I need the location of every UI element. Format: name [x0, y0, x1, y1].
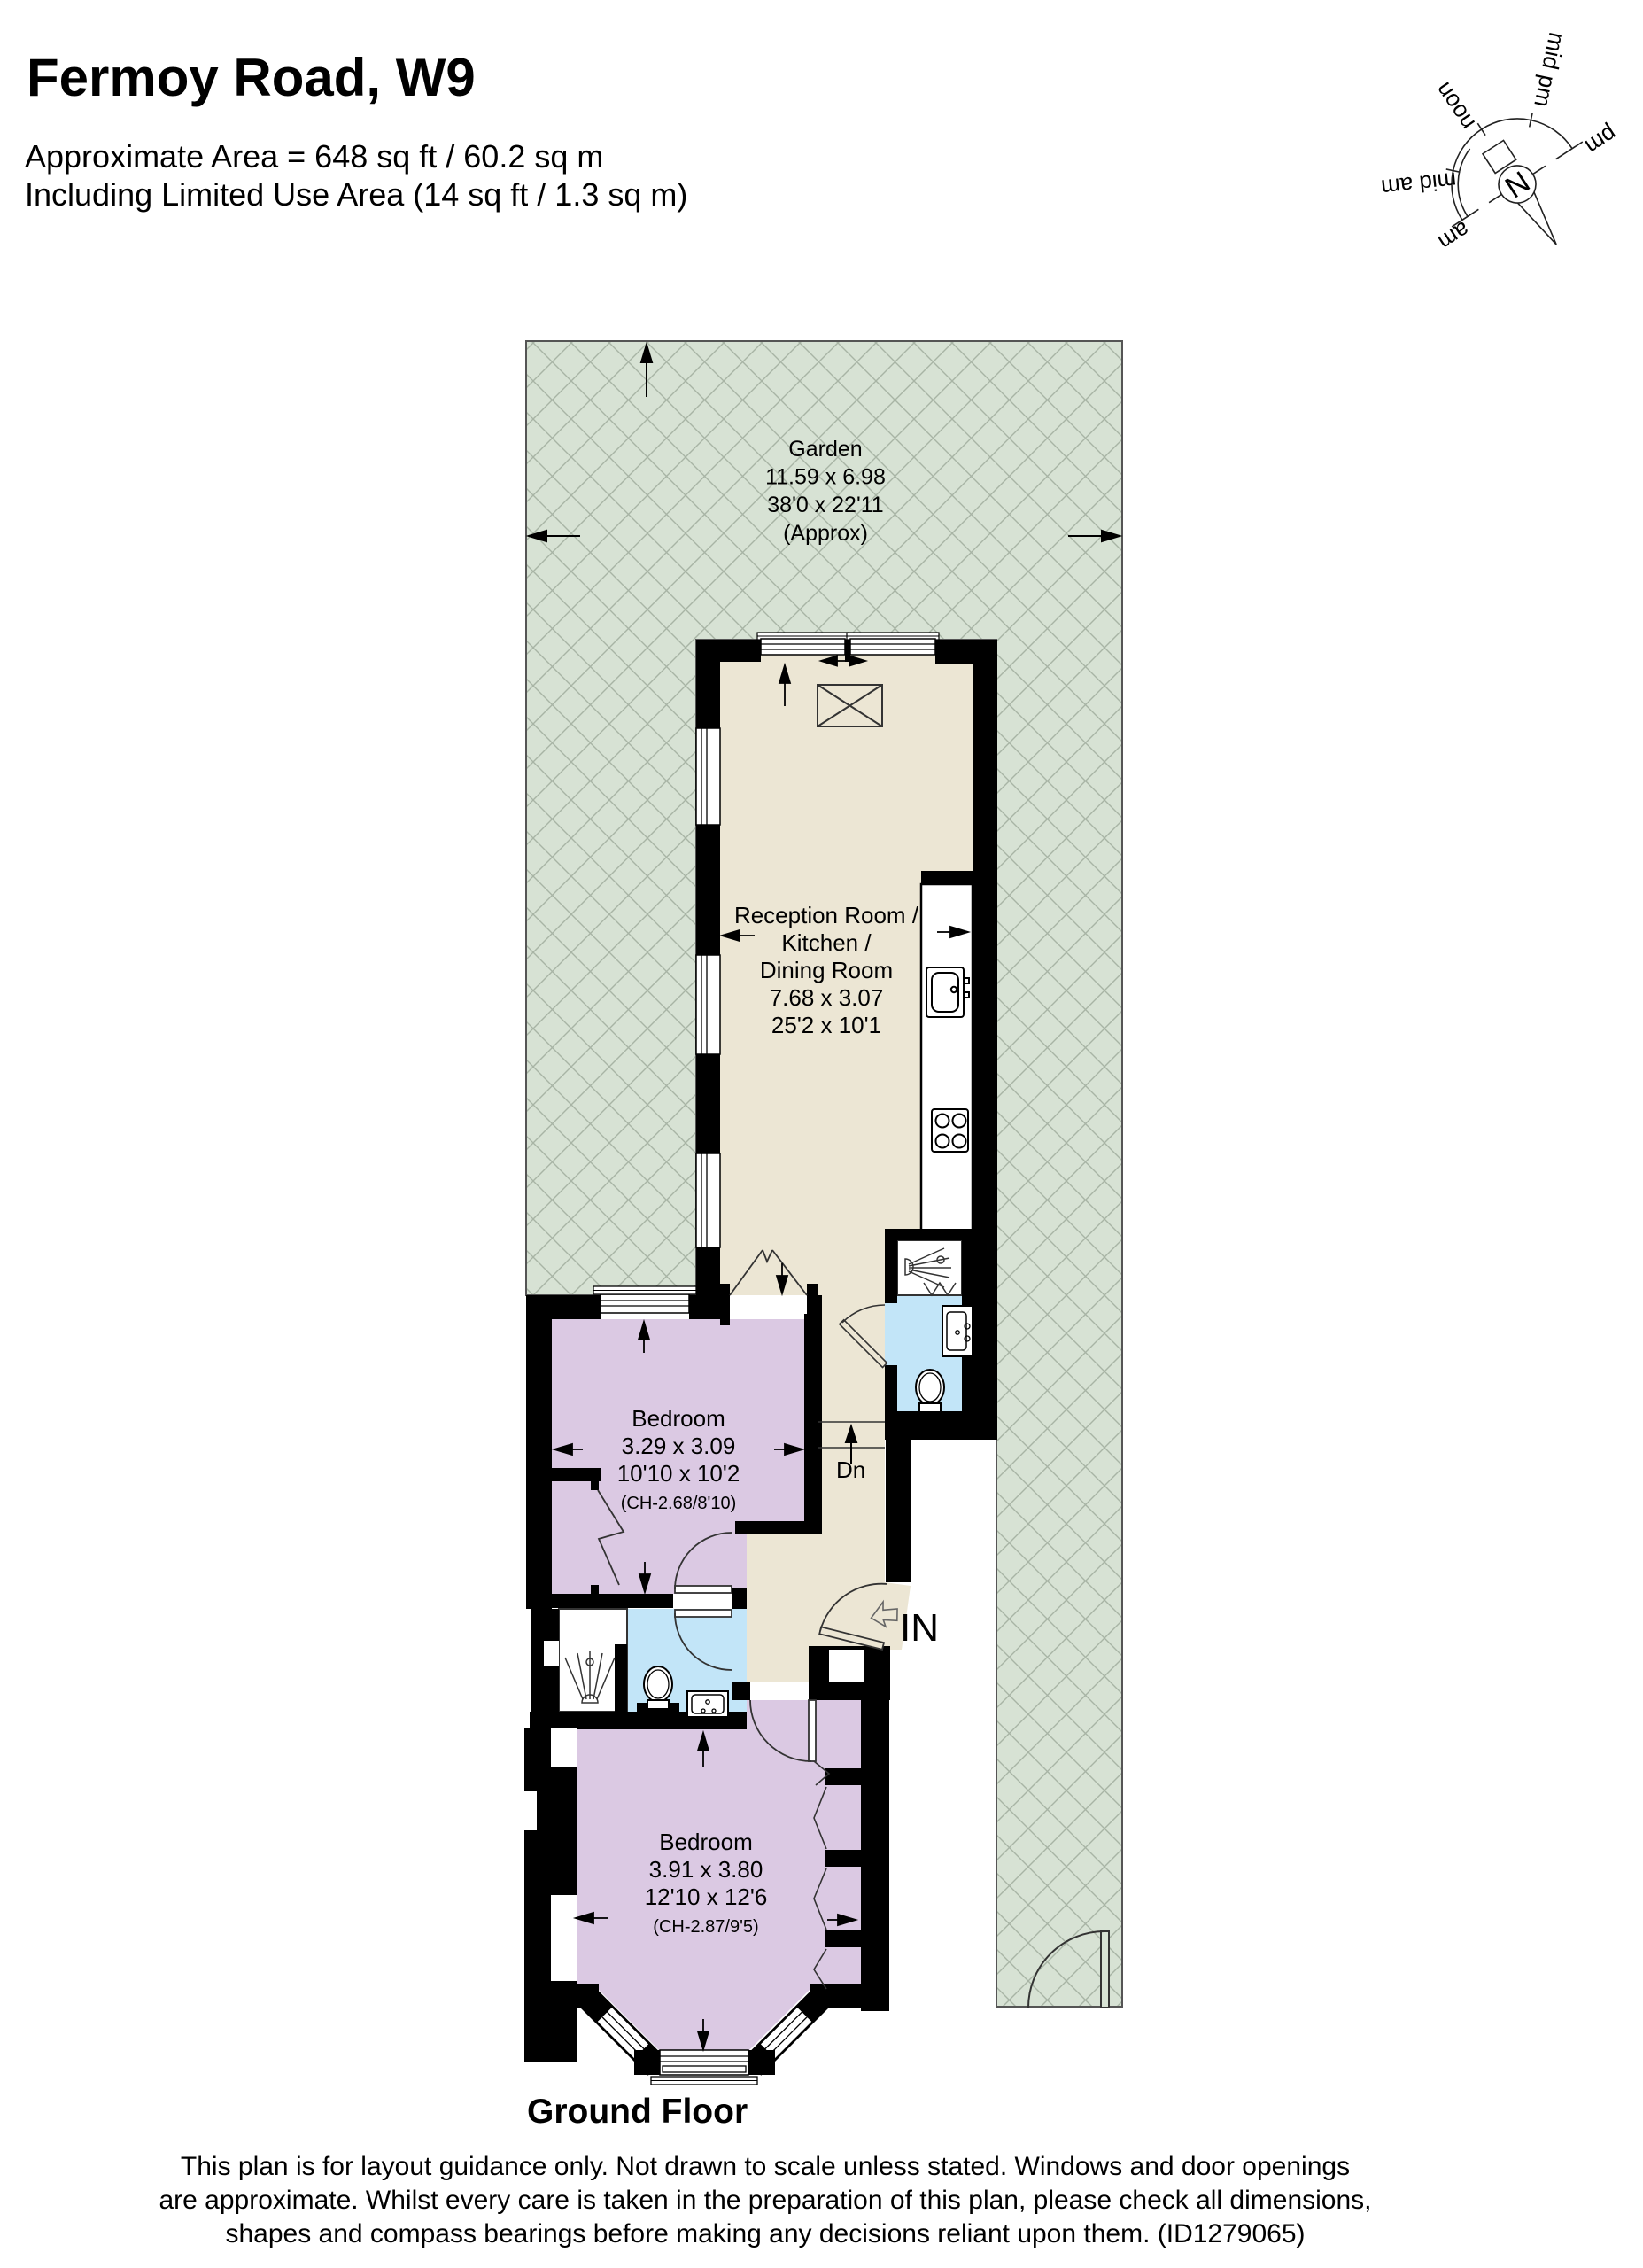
svg-text:10'10 x 10'2: 10'10 x 10'2 — [617, 1460, 740, 1487]
svg-text:11.59 x 6.98: 11.59 x 6.98 — [765, 465, 886, 490]
svg-text:3.91 x 3.80: 3.91 x 3.80 — [649, 1856, 763, 1883]
svg-text:(Approx): (Approx) — [783, 521, 868, 546]
svg-text:7.68 x 3.07: 7.68 x 3.07 — [770, 984, 884, 1011]
svg-text:Garden: Garden — [788, 437, 862, 462]
svg-text:Ground Floor: Ground Floor — [527, 2093, 748, 2131]
svg-text:IN: IN — [900, 1606, 939, 1650]
svg-text:3.29 x 3.09: 3.29 x 3.09 — [622, 1433, 736, 1459]
svg-text:Kitchen /: Kitchen / — [781, 929, 872, 956]
svg-text:Bedroom: Bedroom — [632, 1405, 725, 1432]
svg-text:(CH-2.87/9'5): (CH-2.87/9'5) — [653, 1917, 758, 1937]
svg-text:12'10 x 12'6: 12'10 x 12'6 — [645, 1884, 768, 1910]
svg-text:This plan is for layout guidan: This plan is for layout guidance only. N… — [181, 2152, 1350, 2181]
svg-text:Fermoy Road, W9: Fermoy Road, W9 — [27, 48, 476, 107]
svg-text:25'2 x 10'1: 25'2 x 10'1 — [771, 1012, 881, 1038]
svg-text:Approximate Area = 648 sq ft /: Approximate Area = 648 sq ft / 60.2 sq m — [25, 138, 603, 175]
svg-text:(CH-2.68/8'10): (CH-2.68/8'10) — [621, 1494, 737, 1513]
svg-text:Dining Room: Dining Room — [760, 957, 893, 983]
svg-text:Including Limited Use Area (14: Including Limited Use Area (14 sq ft / 1… — [25, 176, 687, 213]
svg-text:Bedroom: Bedroom — [659, 1829, 753, 1855]
svg-text:Reception Room /: Reception Room / — [734, 902, 919, 928]
svg-text:are approximate. Whilst every: are approximate. Whilst every care is ta… — [159, 2186, 1371, 2215]
svg-text:shapes and compass bearings be: shapes and compass bearings before makin… — [225, 2219, 1305, 2249]
svg-text:Dn: Dn — [836, 1456, 865, 1483]
svg-text:38'0 x 22'11: 38'0 x 22'11 — [767, 493, 883, 517]
